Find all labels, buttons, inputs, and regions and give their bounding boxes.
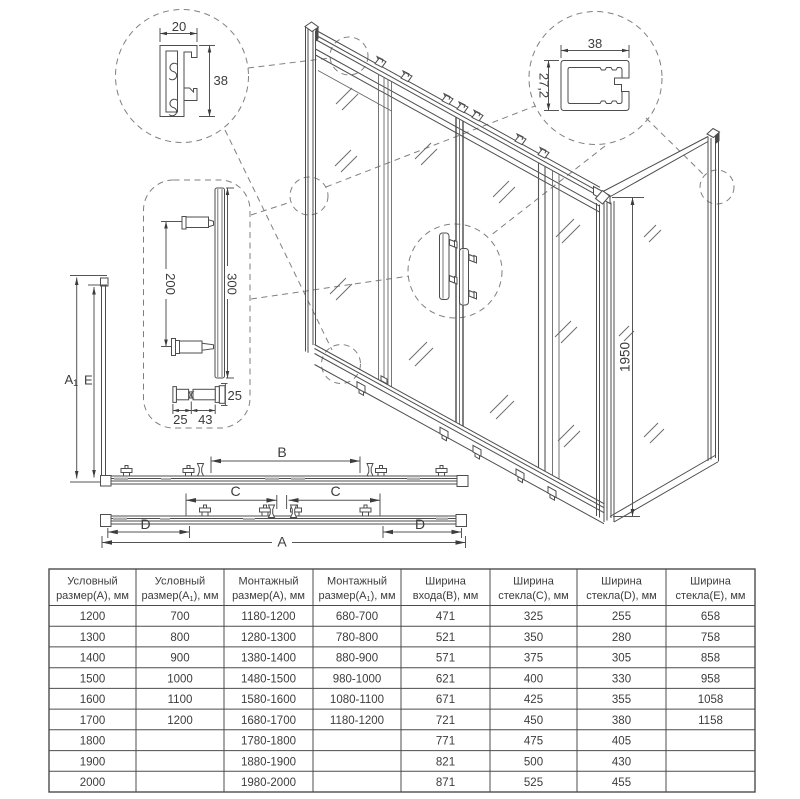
- svg-text:1880-1900: 1880-1900: [241, 756, 296, 768]
- svg-text:471: 471: [436, 611, 455, 623]
- svg-text:405: 405: [612, 736, 631, 748]
- svg-text:38: 38: [588, 36, 602, 51]
- svg-text:1580-1600: 1580-1600: [241, 694, 296, 706]
- svg-text:C: C: [330, 483, 340, 499]
- svg-text:1950: 1950: [618, 342, 633, 372]
- svg-text:Ширина: Ширина: [425, 576, 467, 588]
- svg-text:780-800: 780-800: [336, 632, 378, 644]
- svg-text:900: 900: [170, 653, 189, 665]
- svg-text:B: B: [277, 444, 286, 460]
- svg-text:571: 571: [436, 653, 455, 665]
- svg-text:стекла(E), мм: стекла(E), мм: [676, 590, 746, 602]
- svg-text:2000: 2000: [80, 777, 106, 789]
- svg-text:размер(А1​), мм: размер(А1​), мм: [318, 590, 395, 603]
- svg-text:Ширина: Ширина: [513, 576, 555, 588]
- svg-text:621: 621: [436, 673, 455, 685]
- svg-text:стекла(D), мм: стекла(D), мм: [586, 590, 657, 602]
- svg-text:771: 771: [436, 736, 455, 748]
- svg-text:1100: 1100: [168, 694, 193, 706]
- svg-text:1180-1200: 1180-1200: [330, 715, 384, 727]
- svg-text:1780-1800: 1780-1800: [241, 736, 296, 748]
- svg-text:880-900: 880-900: [336, 653, 378, 665]
- svg-text:размер(А), мм: размер(А), мм: [232, 590, 305, 602]
- svg-text:450: 450: [524, 715, 543, 727]
- svg-text:425: 425: [524, 694, 543, 706]
- svg-text:Ширина: Ширина: [601, 576, 643, 588]
- svg-text:размер(А1​), мм: размер(А1​), мм: [141, 590, 218, 603]
- svg-text:1180-1200: 1180-1200: [241, 611, 295, 623]
- svg-text:255: 255: [612, 611, 631, 623]
- svg-text:680-700: 680-700: [336, 611, 378, 623]
- svg-text:E: E: [84, 373, 93, 388]
- svg-text:305: 305: [612, 653, 631, 665]
- svg-text:1280-1300: 1280-1300: [241, 632, 296, 644]
- svg-text:858: 858: [701, 653, 720, 665]
- svg-text:521: 521: [436, 632, 455, 644]
- svg-text:A: A: [277, 534, 287, 550]
- svg-text:280: 280: [612, 632, 631, 644]
- svg-text:Монтажный: Монтажный: [239, 576, 299, 588]
- svg-text:871: 871: [436, 777, 455, 789]
- svg-text:758: 758: [701, 632, 720, 644]
- svg-text:700: 700: [170, 611, 189, 623]
- svg-text:25: 25: [228, 388, 242, 403]
- svg-text:1380-1400: 1380-1400: [241, 653, 296, 665]
- svg-text:980-1000: 980-1000: [333, 673, 382, 685]
- svg-text:1480-1500: 1480-1500: [241, 673, 296, 685]
- svg-text:821: 821: [436, 756, 455, 768]
- svg-text:25: 25: [173, 412, 187, 427]
- svg-text:стекла(С), мм: стекла(С), мм: [498, 590, 569, 602]
- svg-text:20: 20: [172, 19, 186, 34]
- svg-text:входа(В), мм: входа(В), мм: [413, 590, 479, 602]
- svg-text:1600: 1600: [80, 694, 106, 706]
- svg-text:400: 400: [524, 673, 543, 685]
- svg-text:350: 350: [524, 632, 543, 644]
- svg-text:1000: 1000: [167, 673, 193, 685]
- svg-text:Монтажный: Монтажный: [327, 576, 387, 588]
- svg-text:430: 430: [612, 756, 631, 768]
- svg-text:38: 38: [214, 73, 228, 88]
- svg-text:C: C: [230, 483, 240, 499]
- svg-text:658: 658: [701, 611, 720, 623]
- svg-text:300: 300: [225, 273, 240, 295]
- svg-text:Ширина: Ширина: [690, 576, 732, 588]
- svg-text:525: 525: [524, 777, 543, 789]
- svg-text:330: 330: [612, 673, 631, 685]
- svg-text:455: 455: [612, 777, 631, 789]
- svg-text:325: 325: [524, 611, 543, 623]
- svg-text:1080-1100: 1080-1100: [330, 694, 384, 706]
- svg-text:380: 380: [612, 715, 631, 727]
- svg-text:Условный: Условный: [67, 576, 117, 588]
- svg-text:1158: 1158: [698, 715, 723, 727]
- svg-text:1500: 1500: [80, 673, 106, 685]
- svg-text:1300: 1300: [80, 632, 106, 644]
- svg-text:1200: 1200: [80, 611, 106, 623]
- svg-text:355: 355: [612, 694, 631, 706]
- svg-text:1800: 1800: [80, 736, 106, 748]
- svg-text:671: 671: [436, 694, 455, 706]
- svg-text:D: D: [140, 516, 150, 532]
- svg-text:1200: 1200: [167, 715, 193, 727]
- svg-text:958: 958: [701, 673, 720, 685]
- svg-text:800: 800: [170, 632, 189, 644]
- svg-text:1400: 1400: [80, 653, 106, 665]
- svg-text:Условный: Условный: [155, 576, 205, 588]
- svg-text:размер(А), мм: размер(А), мм: [56, 590, 129, 602]
- svg-text:D: D: [415, 516, 425, 532]
- svg-text:475: 475: [524, 736, 543, 748]
- svg-text:1980-2000: 1980-2000: [241, 777, 296, 789]
- svg-text:1680-1700: 1680-1700: [241, 715, 296, 727]
- svg-text:1700: 1700: [80, 715, 106, 727]
- svg-text:500: 500: [524, 756, 543, 768]
- svg-text:1900: 1900: [80, 756, 106, 768]
- svg-text:721: 721: [436, 715, 455, 727]
- svg-text:200: 200: [163, 273, 178, 295]
- svg-text:1058: 1058: [698, 694, 724, 706]
- svg-text:43: 43: [198, 412, 212, 427]
- svg-text:27,2: 27,2: [537, 73, 552, 98]
- svg-text:375: 375: [524, 653, 543, 665]
